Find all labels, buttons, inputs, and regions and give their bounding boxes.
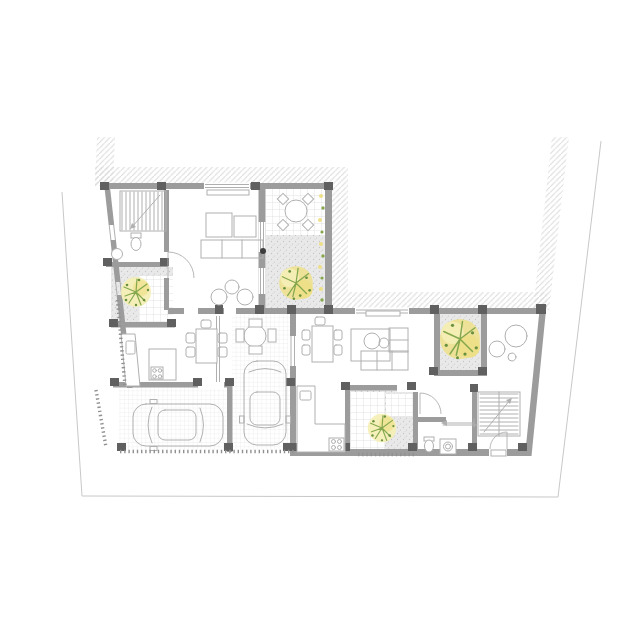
outdoor-table bbox=[244, 325, 266, 347]
courtyard-d-paving-2 bbox=[386, 394, 413, 416]
tree-courtyard-b bbox=[121, 277, 151, 307]
floor-plan-canvas bbox=[0, 0, 640, 640]
tree-courtyard-a bbox=[279, 266, 313, 300]
toilet-b bbox=[425, 440, 434, 452]
entry-doormat bbox=[491, 450, 506, 456]
dining-table-b bbox=[312, 326, 333, 362]
floor-plan-drawing bbox=[0, 0, 640, 640]
tree-courtyard-d bbox=[368, 414, 397, 443]
tree-courtyard-c bbox=[440, 319, 480, 359]
washing-machine bbox=[440, 439, 456, 454]
washbasin bbox=[112, 249, 123, 260]
tv-console bbox=[207, 190, 249, 195]
toilet bbox=[131, 238, 141, 251]
tv-console-b bbox=[366, 311, 400, 316]
column-dot bbox=[260, 248, 266, 254]
sink-b bbox=[300, 391, 311, 400]
round-table bbox=[285, 200, 307, 222]
dining-table bbox=[196, 329, 217, 363]
sink bbox=[126, 341, 135, 354]
